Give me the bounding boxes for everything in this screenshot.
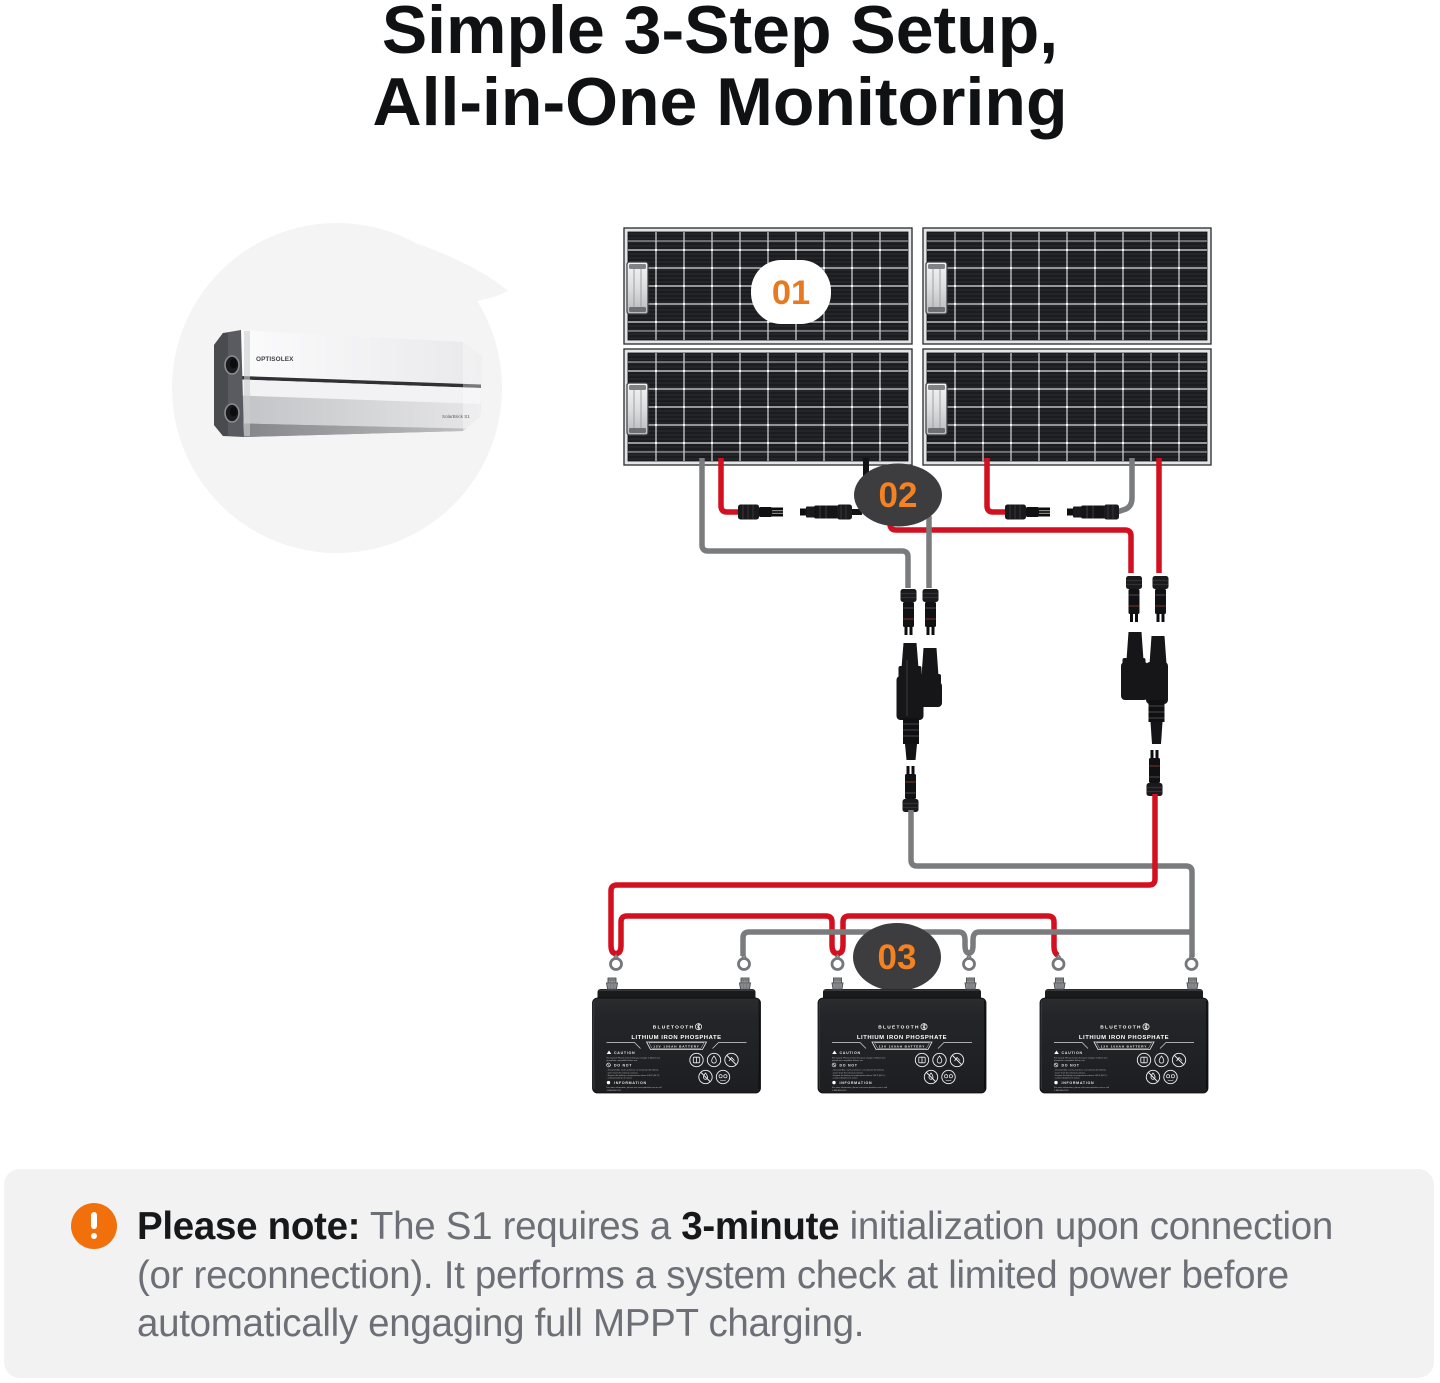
svg-text:03: 03	[878, 938, 917, 977]
svg-text:SolarBrick S1: SolarBrick S1	[442, 414, 470, 419]
svg-text:01: 01	[772, 274, 810, 312]
svg-text:02: 02	[879, 476, 918, 515]
svg-text:OPTISOLEX: OPTISOLEX	[256, 356, 294, 363]
